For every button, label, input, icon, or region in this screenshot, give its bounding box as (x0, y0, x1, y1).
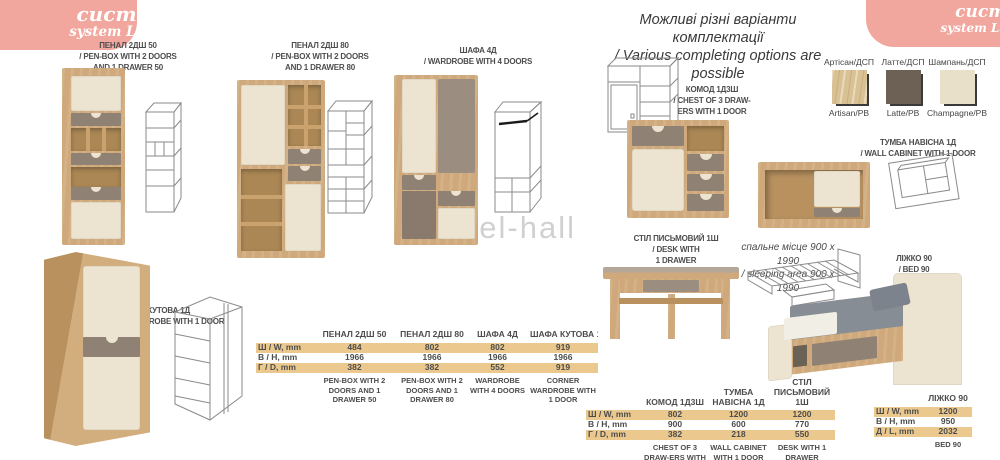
handle (700, 154, 712, 160)
column-footer: WARDROBE WITH 4 DOORS (467, 373, 528, 405)
label-line: / PEN-BOX WITH 2 DOORS (53, 52, 203, 63)
row-label: В / H, mm (256, 353, 312, 363)
brand-subtitle: system Lami (866, 22, 1000, 35)
open-shelf (241, 169, 281, 251)
bed-image (766, 262, 968, 394)
door-panel (285, 184, 322, 251)
value-cell: 802 (642, 410, 708, 420)
table-corner (256, 330, 312, 343)
door-panel (402, 79, 436, 173)
drawer-panel (687, 194, 724, 211)
corner-wardrobe-image (44, 252, 150, 446)
shelf (241, 222, 281, 226)
row-label: Д / L, mm (874, 427, 924, 437)
brand-banner-right: система Ламі system Lami (866, 0, 1000, 47)
penbox50-drawing (140, 100, 182, 214)
door-panel (814, 171, 860, 207)
value-cell: 802 (467, 343, 528, 353)
desk-image (602, 258, 740, 344)
value-cell: 218 (708, 430, 769, 440)
desk-leg (721, 279, 731, 339)
row-label: Ш / W, mm (586, 410, 642, 420)
value-cell: 1966 (397, 353, 467, 363)
drawer-panel (687, 174, 724, 191)
column-header: ШАФА КУТОВА 1Д (528, 330, 598, 343)
dimensions-table-bed: ЛІЖКО 90Ш / W, mm1200В / H, mm950Д / L, … (874, 394, 964, 450)
open-shelf (71, 128, 121, 151)
wallcab-drawing (882, 146, 966, 218)
handle (300, 149, 310, 154)
value-cell: 382 (642, 430, 708, 440)
door-panel (438, 208, 475, 239)
value-cell: 1200 (924, 407, 972, 417)
open-shelf (687, 126, 724, 151)
handle (300, 166, 310, 171)
value-cell: 802 (397, 343, 467, 353)
drawer-panel (288, 166, 321, 180)
table-corner (874, 394, 924, 407)
shelf (288, 105, 321, 109)
drawer-panel (288, 149, 321, 163)
column-header: СТІЛ ПИСЬМОВИЙ 1Ш (769, 378, 835, 410)
spec-table: КОМОД 1Д3ШТУМБА НАВІСНА 1ДСТІЛ ПИСЬМОВИЙ… (586, 378, 835, 460)
value-cell: 770 (769, 420, 835, 430)
value-cell: 552 (467, 363, 528, 373)
value-cell: 484 (312, 343, 397, 353)
spec-table: ПЕНАЛ 2ДШ 50ПЕНАЛ 2ДШ 80ШАФА 4ДШАФА КУТО… (256, 330, 598, 405)
handle (700, 174, 712, 180)
column-footer: PEN-BOX WITH 2 DOORS AND 1 DRAWER 50 (312, 373, 397, 405)
table-corner (256, 373, 312, 405)
label-line: ШАФА 4Д (403, 46, 553, 57)
wardrobe4-image (394, 75, 478, 245)
value-cell: 1966 (528, 353, 598, 363)
label-wardrobe4: ШАФА 4Д / WARDROBE WITH 4 DOORS (403, 46, 553, 68)
dimensions-table-wardrobes: ПЕНАЛ 2ДШ 50ПЕНАЛ 2ДШ 80ШАФА 4ДШАФА КУТО… (256, 330, 578, 405)
column-header: ПЕНАЛ 2ДШ 80 (397, 330, 467, 343)
options-note-uk: Можливі різні варіанти комплектації (598, 11, 838, 47)
catalog-page: система Ламі system Lami система Ламі sy… (0, 0, 1000, 460)
door-panel (438, 79, 475, 173)
value-cell: 550 (769, 430, 835, 440)
drawer-panel (71, 153, 121, 165)
drawer-strip (83, 337, 140, 356)
column-header: ЛІЖКО 90 (924, 394, 972, 407)
dimensions-table-chest-desk: КОМОД 1Д3ШТУМБА НАВІСНА 1ДСТІЛ ПИСЬМОВИЙ… (586, 378, 819, 460)
handle (414, 175, 424, 180)
drawer-panel (687, 154, 724, 171)
label-line: / WARDROBE WITH 4 DOORS (403, 57, 553, 68)
value-cell: 1966 (312, 353, 397, 363)
chest-image (627, 120, 729, 218)
shelf-divider (86, 128, 90, 151)
label-penbox80: ПЕНАЛ 2ДШ 80 / PEN-BOX WITH 2 DOORS AND … (245, 41, 395, 73)
column-header: ПЕНАЛ 2ДШ 50 (312, 330, 397, 343)
shelf (241, 195, 281, 199)
desk-leg (610, 279, 620, 339)
swatch-label-uk: Шампань/ДСП (922, 57, 992, 67)
penbox80-drawing (324, 97, 380, 217)
column-footer: CHEST OF 3 DRAW-ERS WITH 1 DOOR (642, 440, 708, 460)
label-line: AND 1 DRAWER 80 (245, 63, 395, 74)
swatch-label-en: Champagne/PB (922, 108, 992, 118)
drawer-panel (71, 113, 121, 126)
label-line: ПЕНАЛ 2ДШ 50 (53, 41, 203, 52)
column-header: КОМОД 1Д3Ш (642, 378, 708, 410)
open-shelf (71, 167, 121, 186)
value-cell: 919 (528, 363, 598, 373)
swatch-color-artisan (832, 70, 867, 104)
value-cell: 382 (397, 363, 467, 373)
penbox50-image (62, 68, 125, 245)
door-panel (241, 85, 285, 165)
value-cell: 1200 (708, 410, 769, 420)
value-cell: 600 (708, 420, 769, 430)
brand-title: система Ламі (0, 3, 322, 25)
value-cell: 1200 (769, 410, 835, 420)
row-label: Ш / W, mm (256, 343, 312, 353)
table-corner (874, 437, 924, 450)
brand-title: система Ламі (866, 3, 1000, 22)
wallcab-image (758, 162, 870, 228)
handle (652, 126, 664, 132)
drawer-panel (632, 126, 684, 147)
penbox80-image (237, 80, 325, 258)
shelf (288, 125, 321, 129)
label-line: / DESK WITH (601, 245, 751, 256)
table-corner (586, 378, 642, 410)
label-line: ПЕНАЛ 2ДШ 80 (245, 41, 395, 52)
label-line: / PEN-BOX WITH 2 DOORS (245, 52, 395, 63)
handle (700, 194, 712, 200)
door-panel (71, 76, 121, 111)
column-footer: DESK WITH 1 DRAWER (769, 440, 835, 460)
swatch-color-champagne (940, 70, 975, 104)
door-panel (402, 191, 436, 239)
open-slot (793, 344, 807, 366)
brand-subtitle: system Lami (0, 25, 233, 40)
open-shelf (288, 85, 321, 146)
swatch-color-latte (886, 70, 921, 104)
drawer-panel (643, 280, 698, 292)
column-footer: WALL CABINET WITH 1 DOOR (708, 440, 769, 460)
row-label: В / H, mm (586, 420, 642, 430)
row-label: В / H, mm (874, 417, 924, 427)
drawer-panel (438, 191, 475, 205)
column-header: ТУМБА НАВІСНА 1Д (708, 378, 769, 410)
column-footer: PEN-BOX WITH 2 DOORS AND 1 DRAWER 80 (397, 373, 467, 405)
spec-table: ЛІЖКО 90Ш / W, mm1200В / H, mm950Д / L, … (874, 394, 972, 450)
value-cell: 919 (528, 343, 598, 353)
handle (106, 337, 118, 343)
column-footer: BED 90 (924, 437, 972, 450)
handle (451, 191, 461, 196)
table-corner (586, 440, 642, 460)
row-label: Г / D, mm (586, 430, 642, 440)
handle (832, 208, 842, 213)
wardrobe4-drawing (492, 98, 546, 214)
swatch-champagne: Шампань/ДСП Champagne/PB (922, 57, 992, 118)
handle (91, 113, 101, 118)
desktop (603, 267, 738, 279)
shelf-divider (304, 85, 308, 146)
row-label: Г / D, mm (256, 363, 312, 373)
value-cell: 1966 (467, 353, 528, 363)
bed-drawer (812, 336, 878, 366)
door-panel (632, 149, 684, 211)
desk-stretcher (619, 298, 724, 304)
drawer-strip (814, 208, 860, 218)
drawer-panel (71, 187, 121, 199)
handle (91, 153, 101, 158)
handle (91, 187, 101, 192)
shelf-divider (102, 128, 106, 151)
door-panel (71, 202, 121, 239)
value-cell: 382 (312, 363, 397, 373)
column-header: ШАФА 4Д (467, 330, 528, 343)
label-line: СТІЛ ПИСЬМОВИЙ 1Ш (601, 234, 751, 245)
value-cell: 900 (642, 420, 708, 430)
value-cell: 950 (924, 417, 972, 427)
value-cell: 2032 (924, 427, 972, 437)
row-label: Ш / W, mm (874, 407, 924, 417)
drawer-panel (402, 175, 436, 189)
corner-wardrobe-drawing (170, 292, 246, 424)
